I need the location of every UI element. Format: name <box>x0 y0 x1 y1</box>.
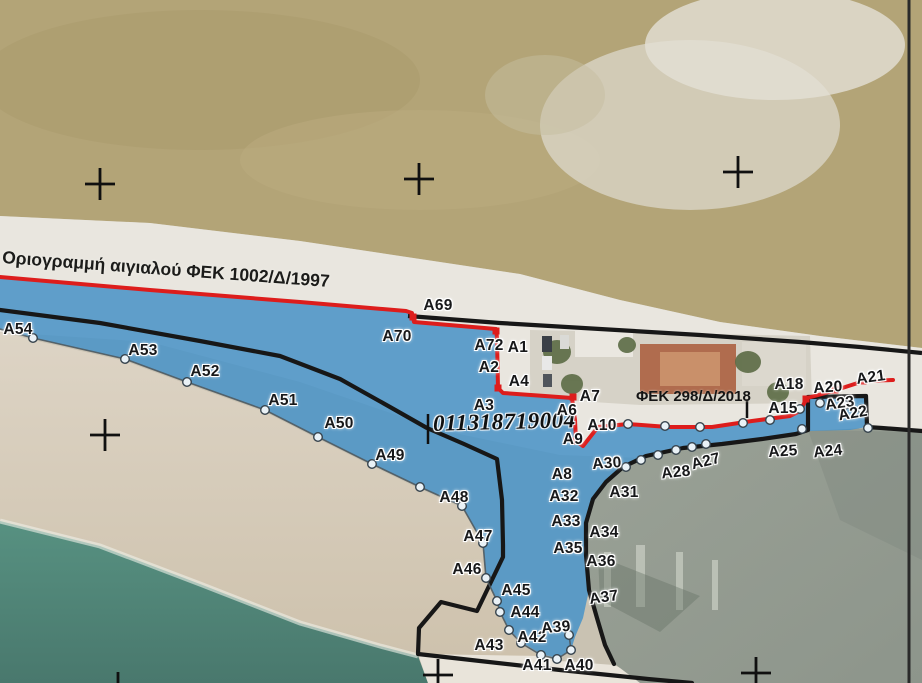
survey-circle-marker <box>517 639 526 648</box>
red-vertex-marker <box>860 378 867 385</box>
survey-circle-marker <box>696 423 705 432</box>
survey-circle-marker <box>183 378 192 387</box>
survey-circle-marker <box>121 355 130 364</box>
survey-circle-marker <box>622 463 631 472</box>
survey-circle-marker <box>841 401 850 410</box>
red-vertex-marker <box>573 438 580 445</box>
survey-circle-marker <box>537 651 546 660</box>
survey-circle-marker <box>624 420 633 429</box>
red-vertex-marker <box>832 387 839 394</box>
survey-circle-marker <box>505 626 514 635</box>
survey-circle-marker <box>688 443 697 452</box>
survey-circle-marker <box>553 655 562 664</box>
survey-circle-marker <box>739 419 748 428</box>
survey-circle-marker <box>479 539 488 548</box>
coastal-survey-map: Οριογραμμή αιγιαλού ΦΕΚ 1002/Δ/1997 ΦΕΚ … <box>0 0 922 683</box>
survey-circle-marker <box>654 451 663 460</box>
survey-circle-marker <box>798 425 807 434</box>
survey-circle-marker <box>858 405 867 414</box>
survey-circle-marker <box>672 446 681 455</box>
red-vertex-marker <box>493 328 500 335</box>
survey-circle-marker <box>416 483 425 492</box>
survey-circle-marker <box>29 334 38 343</box>
survey-circle-marker <box>816 399 825 408</box>
survey-circle-marker <box>661 422 670 431</box>
survey-circle-marker <box>864 424 873 433</box>
red-vertex-marker <box>410 314 417 321</box>
survey-circle-marker <box>565 631 574 640</box>
survey-circle-marker <box>496 608 505 617</box>
red-vertex-marker <box>495 385 502 392</box>
survey-circle-marker <box>368 460 377 469</box>
survey-circle-marker <box>261 406 270 415</box>
survey-circle-marker <box>796 405 805 414</box>
red-vertex-marker <box>570 394 577 401</box>
survey-circle-marker <box>766 416 775 425</box>
survey-circle-marker <box>458 502 467 511</box>
map-canvas <box>0 0 922 683</box>
survey-circle-marker <box>637 456 646 465</box>
red-vertex-marker <box>803 396 810 403</box>
survey-circle-marker <box>567 646 576 655</box>
survey-circle-marker <box>482 574 491 583</box>
survey-circle-marker <box>314 433 323 442</box>
survey-circle-marker <box>702 440 711 449</box>
survey-circle-marker <box>493 597 502 606</box>
